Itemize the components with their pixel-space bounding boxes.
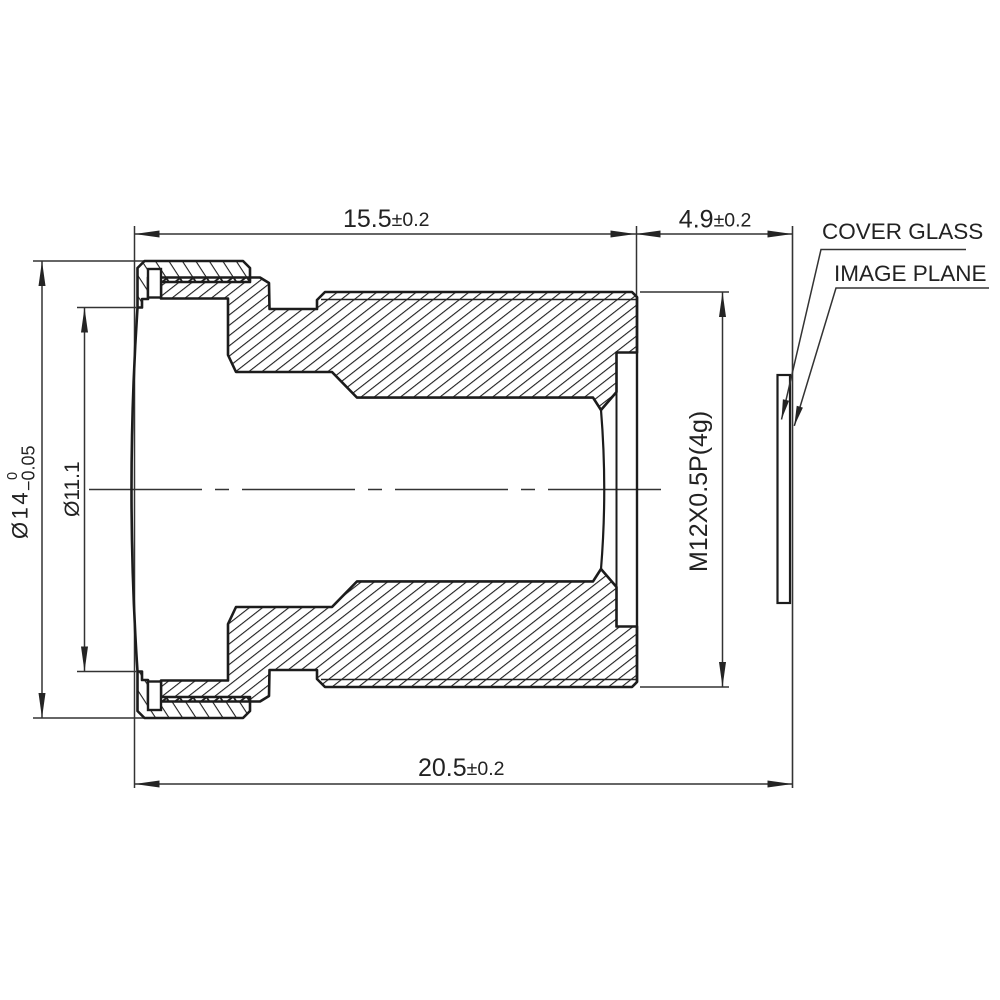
svg-text:15.5±0.2: 15.5±0.2 — [343, 205, 429, 233]
svg-text:Ø14: Ø14 — [8, 490, 33, 539]
svg-text:−0.05: −0.05 — [19, 445, 39, 491]
svg-text:20.5±0.2: 20.5±0.2 — [418, 754, 504, 782]
svg-text:4.9±0.2: 4.9±0.2 — [679, 206, 752, 234]
svg-text:COVER GLASS: COVER GLASS — [822, 219, 983, 244]
svg-text:IMAGE PLANE: IMAGE PLANE — [834, 261, 987, 286]
svg-text:M12X0.5P(4g): M12X0.5P(4g) — [685, 411, 713, 572]
svg-text:Ø11.1: Ø11.1 — [61, 461, 84, 517]
